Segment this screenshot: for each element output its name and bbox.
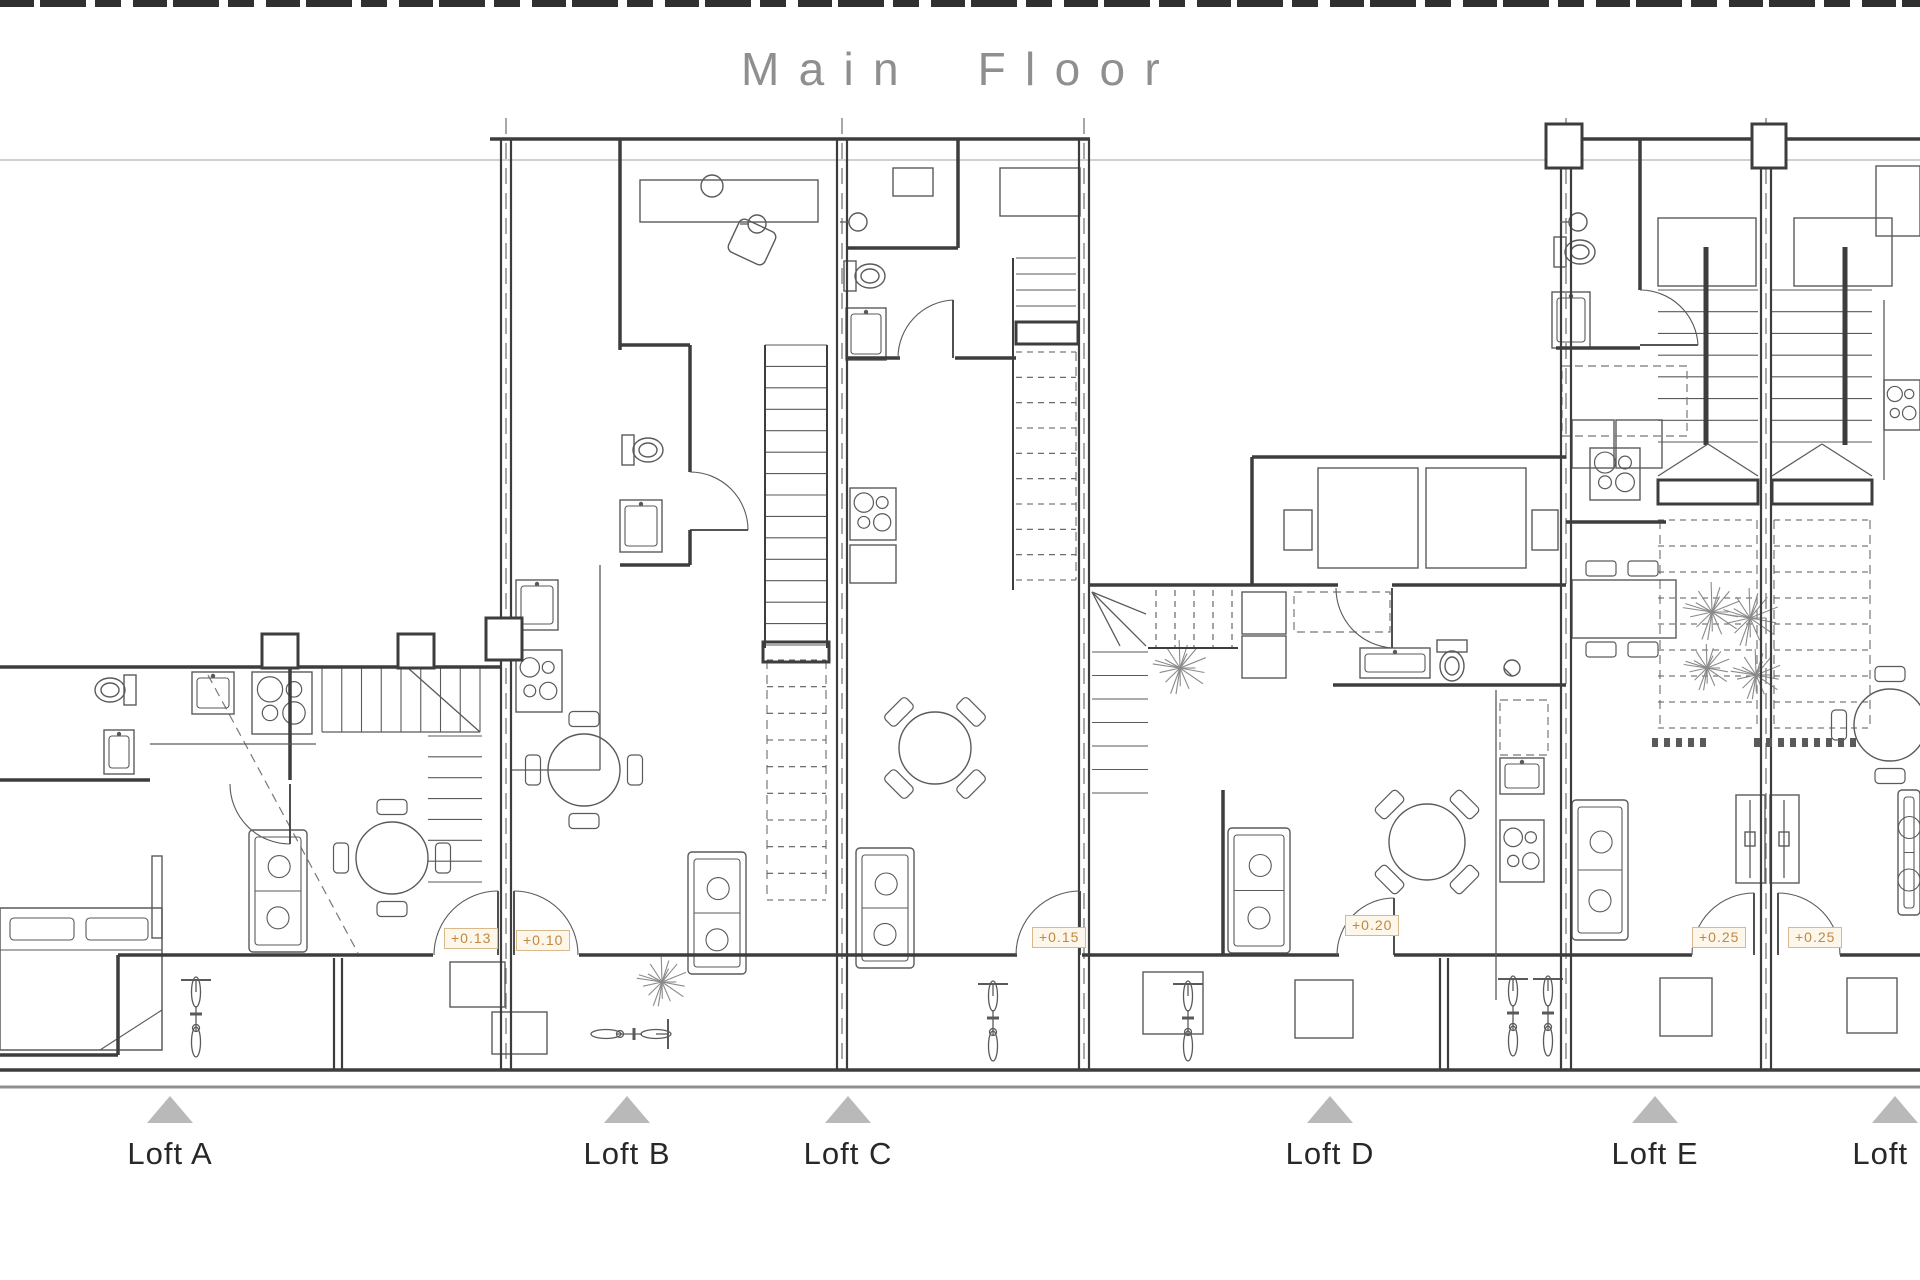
floor-plan-page: Main Floor +0.13+0.10+0.15+0.20+0.25+0.2…: [0, 0, 1920, 1280]
loft-label: Loft B: [552, 1136, 702, 1172]
floor-plan-drawing: [0, 0, 1920, 1280]
triangle-icon: [825, 1096, 871, 1123]
loft-label: Loft E: [1580, 1136, 1730, 1172]
door-swing: [230, 290, 1840, 955]
toilet-icon: [95, 237, 1595, 705]
loft-label: Loft F: [1820, 1136, 1920, 1172]
loft-label: Loft D: [1255, 1136, 1405, 1172]
triangle-icon: [1872, 1096, 1918, 1123]
fixture-icon: [701, 175, 1587, 676]
party-wall-centerlines: [506, 118, 1766, 1070]
loft-marker: Loft F: [1820, 1096, 1920, 1172]
loft-marker: Loft E: [1580, 1096, 1730, 1172]
furniture: [152, 166, 1920, 1054]
staircase: [322, 258, 1872, 900]
elevation-marker: +0.25: [1788, 927, 1842, 948]
loft-label: Loft C: [773, 1136, 923, 1172]
loft-marker: Loft C: [773, 1096, 923, 1172]
triangle-icon: [147, 1096, 193, 1123]
plant-icon: [637, 582, 1780, 1006]
bed: [0, 908, 162, 1050]
loft-marker: Loft B: [552, 1096, 702, 1172]
reference-lines: [0, 160, 1920, 1087]
loft-marker: Loft A: [95, 1096, 245, 1172]
walls: [0, 139, 1920, 1070]
triangle-icon: [1632, 1096, 1678, 1123]
elevation-marker: +0.25: [1692, 927, 1746, 948]
loft-marker: Loft D: [1255, 1096, 1405, 1172]
dining-table: [334, 667, 1920, 917]
elevation-marker: +0.13: [444, 928, 498, 949]
dotted-strip: [1652, 738, 1856, 747]
triangle-icon: [604, 1096, 650, 1123]
elevation-marker: +0.15: [1032, 927, 1086, 948]
dashed-guides: [208, 352, 1870, 953]
elevation-marker: +0.20: [1345, 915, 1399, 936]
loft-label: Loft A: [95, 1136, 245, 1172]
desk-chair: [726, 217, 777, 267]
bicycle-icon: [181, 976, 1563, 1061]
elevation-marker: +0.10: [516, 930, 570, 951]
triangle-icon: [1307, 1096, 1353, 1123]
